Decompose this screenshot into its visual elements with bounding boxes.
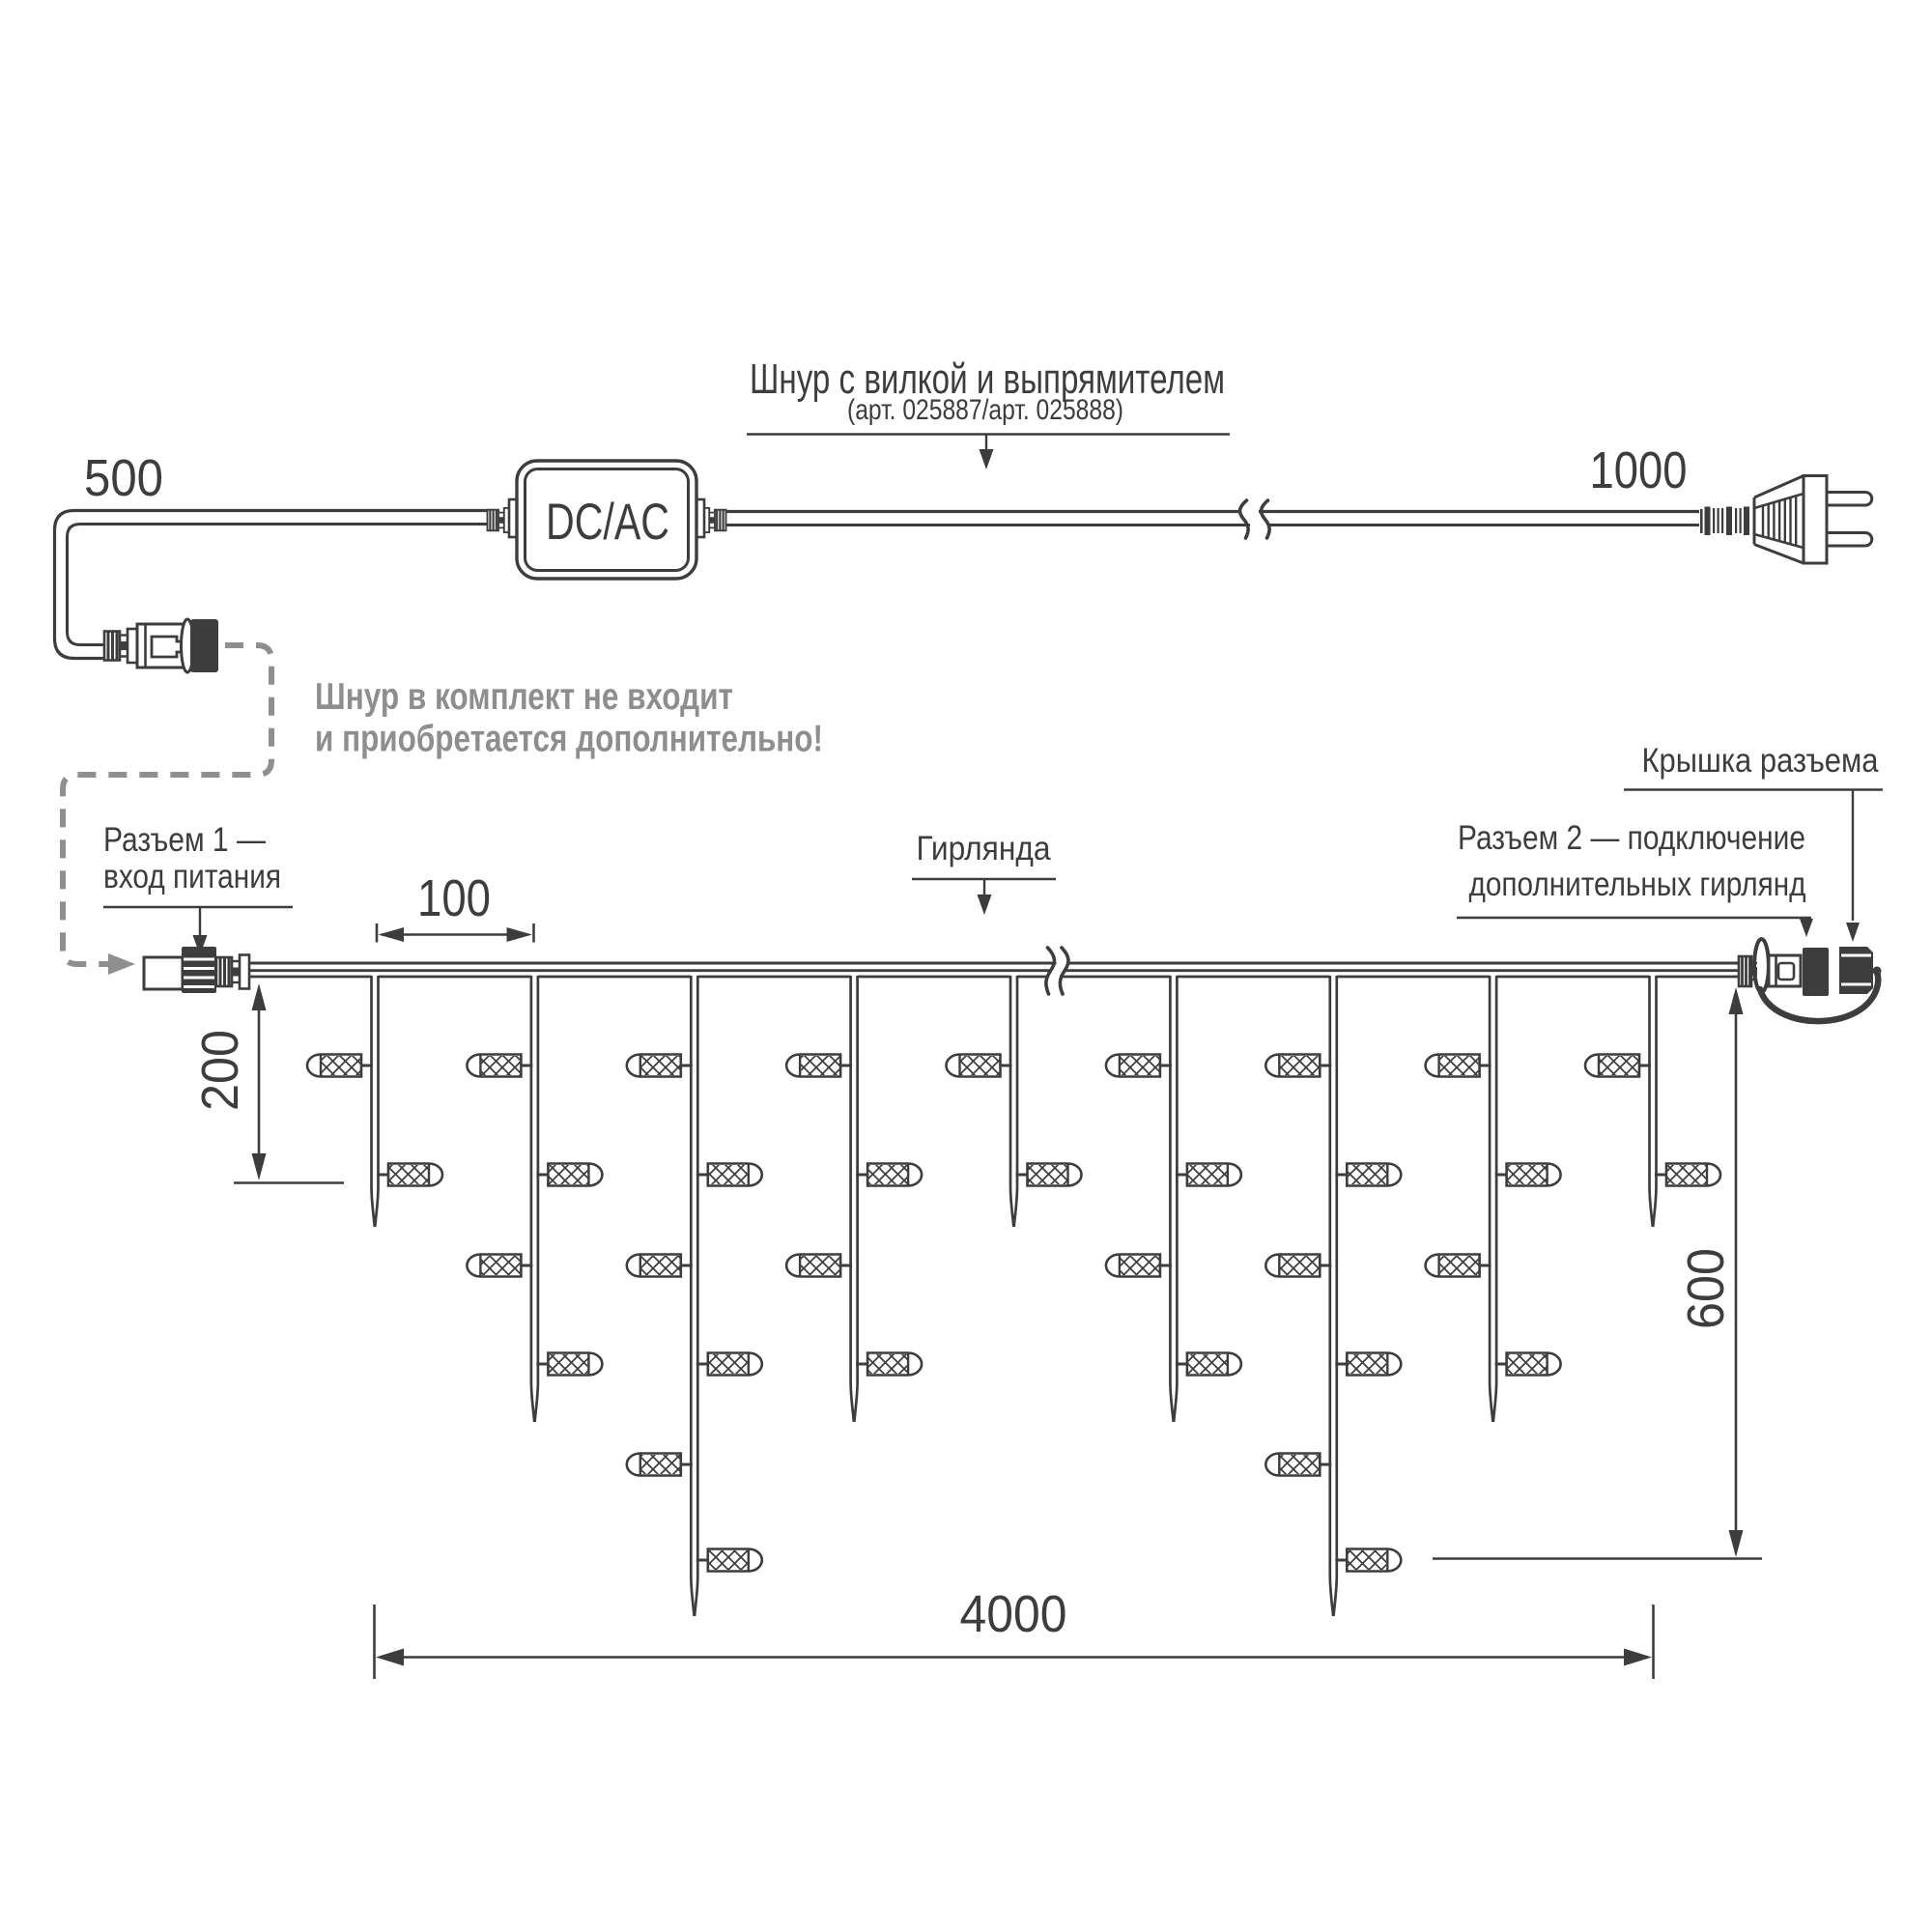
- svg-text:200: 200: [191, 1030, 249, 1111]
- svg-text:100: 100: [417, 869, 491, 927]
- svg-text:дополнительных гирлянд: дополнительных гирлянд: [1469, 866, 1806, 903]
- svg-text:4000: 4000: [960, 1585, 1067, 1643]
- svg-text:DC/AC: DC/AC: [546, 494, 669, 551]
- svg-text:Разъем 1 —: Разъем 1 —: [103, 821, 266, 859]
- svg-text:Крышка разъема: Крышка разъема: [1642, 742, 1879, 780]
- svg-text:500: 500: [84, 449, 163, 507]
- svg-text:вход питания: вход питания: [103, 858, 281, 895]
- svg-text:и приобретается дополнительно!: и приобретается дополнительно!: [315, 719, 823, 760]
- svg-text:1000: 1000: [1590, 441, 1688, 499]
- svg-text:600: 600: [1677, 1248, 1735, 1329]
- svg-text:Разъем 2 — подключение: Разъем 2 — подключение: [1458, 819, 1805, 857]
- svg-text:(арт. 025887/арт. 025888): (арт. 025887/арт. 025888): [847, 394, 1123, 426]
- svg-text:Гирлянда: Гирлянда: [917, 830, 1051, 867]
- svg-text:Шнур в комплект не входит: Шнур в комплект не входит: [315, 676, 733, 718]
